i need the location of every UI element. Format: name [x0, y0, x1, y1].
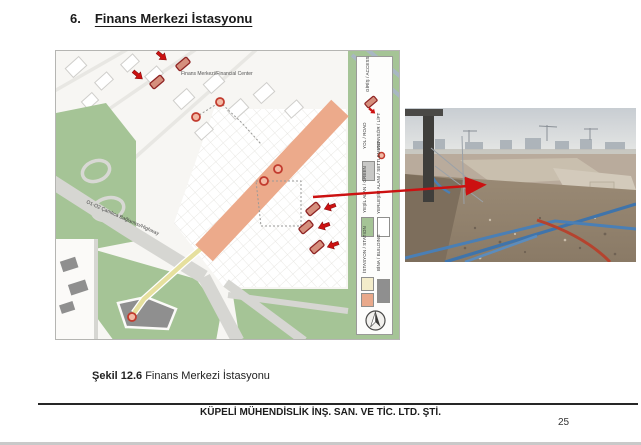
figure-caption-label: Şekil 12.6	[92, 370, 142, 382]
construction-photo	[405, 108, 636, 262]
steel-column	[423, 114, 434, 202]
legend-label-green: YEŞİL ALAN / GREEN	[363, 166, 368, 213]
legend-label-station: İSTASYON / STATION	[363, 226, 368, 273]
station-swatch-salmon	[361, 293, 374, 307]
figure-caption-text: Finans Merkezi İstasyonu	[142, 370, 270, 382]
station-map: Finans Merkezi/Financial Center O1-O2 Ça…	[55, 50, 400, 340]
footer-company: KÜPELİ MÜHENDİSLİK İNŞ. SAN. VE TİC. LTD…	[0, 407, 641, 418]
legend-label-settlement: YERLEŞİM ALANI / SETTLEMENT	[377, 141, 382, 214]
footer-divider	[38, 403, 638, 405]
north-arrow-icon	[364, 309, 387, 332]
legend-label-access: GİRİŞ / ACCESS	[366, 56, 371, 92]
map-legend: GİRİŞ / ACCESS YOL / ROAD ASANSÖR / LİFT…	[356, 56, 393, 335]
map-center-label: Finans Merkezi/Financial Center	[181, 71, 253, 77]
legend-label-road: YOL / ROAD	[363, 122, 368, 149]
building-swatch	[377, 279, 390, 303]
section-heading: 6.Finans Merkezi İstasyonu	[70, 11, 252, 26]
section-title: Finans Merkezi İstasyonu	[95, 11, 253, 26]
map-drawing: Finans Merkezi/Financial Center O1-O2 Ça…	[56, 51, 400, 340]
legend-label-building: BİNA / BUILDING	[377, 234, 382, 271]
section-number: 6.	[70, 11, 81, 26]
figure-caption: Şekil 12.6 Finans Merkezi İstasyonu	[92, 370, 270, 382]
access-marker-icon	[361, 94, 383, 114]
page-number: 25	[558, 417, 569, 428]
photo-scene	[405, 108, 636, 262]
document-page: 6.Finans Merkezi İstasyonu	[0, 0, 641, 445]
station-swatch-cream	[361, 277, 374, 291]
